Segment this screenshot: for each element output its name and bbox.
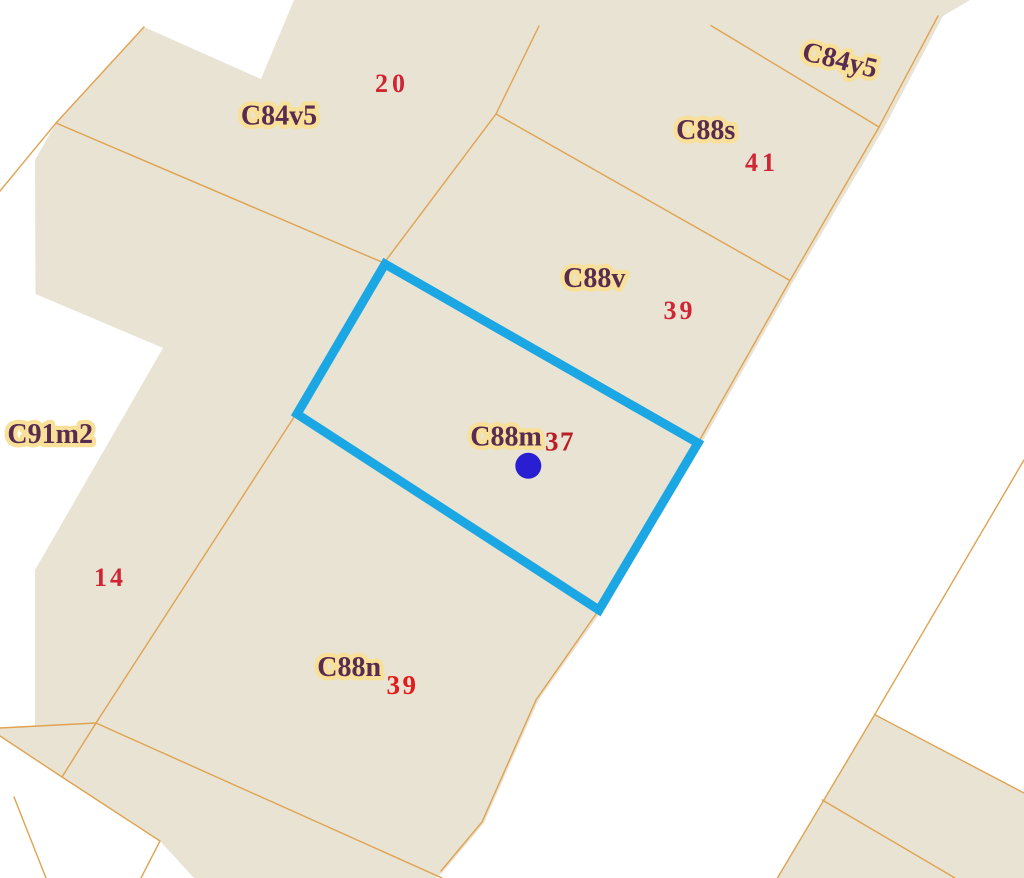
svg-text:C88n: C88n — [317, 652, 381, 683]
svg-text:37: 37 — [545, 427, 575, 457]
svg-text:C84v5: C84v5 — [241, 101, 317, 132]
svg-text:C88m: C88m — [470, 422, 542, 453]
svg-text:14: 14 — [94, 563, 126, 592]
svg-text:39: 39 — [387, 670, 419, 700]
svg-text:20: 20 — [375, 69, 409, 98]
svg-text:C88v: C88v — [563, 263, 625, 294]
svg-text:39: 39 — [664, 296, 696, 325]
svg-text:41: 41 — [745, 148, 779, 177]
svg-text:C88s: C88s — [676, 115, 735, 146]
svg-text:C91m2: C91m2 — [7, 419, 93, 450]
